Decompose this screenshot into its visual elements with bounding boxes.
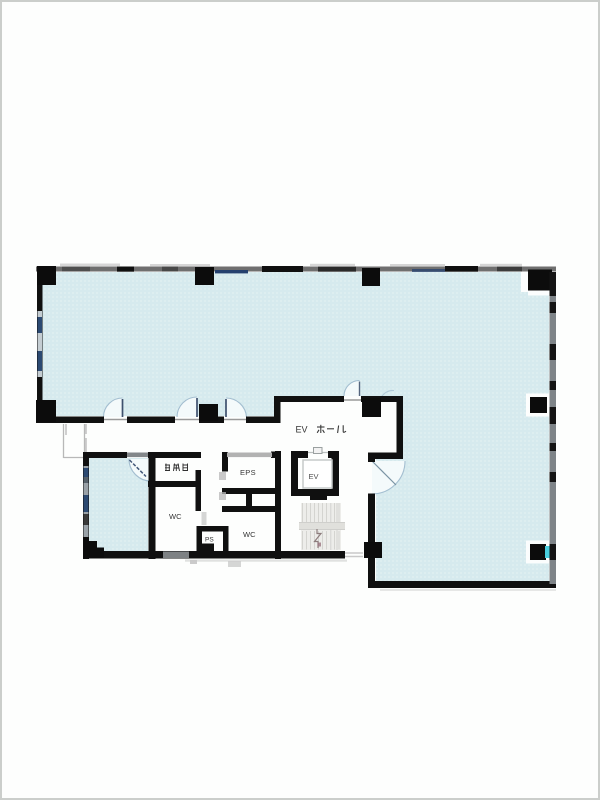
svg-text:EPS: EPS xyxy=(240,468,256,477)
svg-text:WC: WC xyxy=(243,530,256,539)
svg-text:EV: EV xyxy=(309,472,319,481)
svg-text:EV: EV xyxy=(296,425,308,435)
svg-text:WC: WC xyxy=(169,512,182,521)
svg-text:PS: PS xyxy=(205,537,214,544)
